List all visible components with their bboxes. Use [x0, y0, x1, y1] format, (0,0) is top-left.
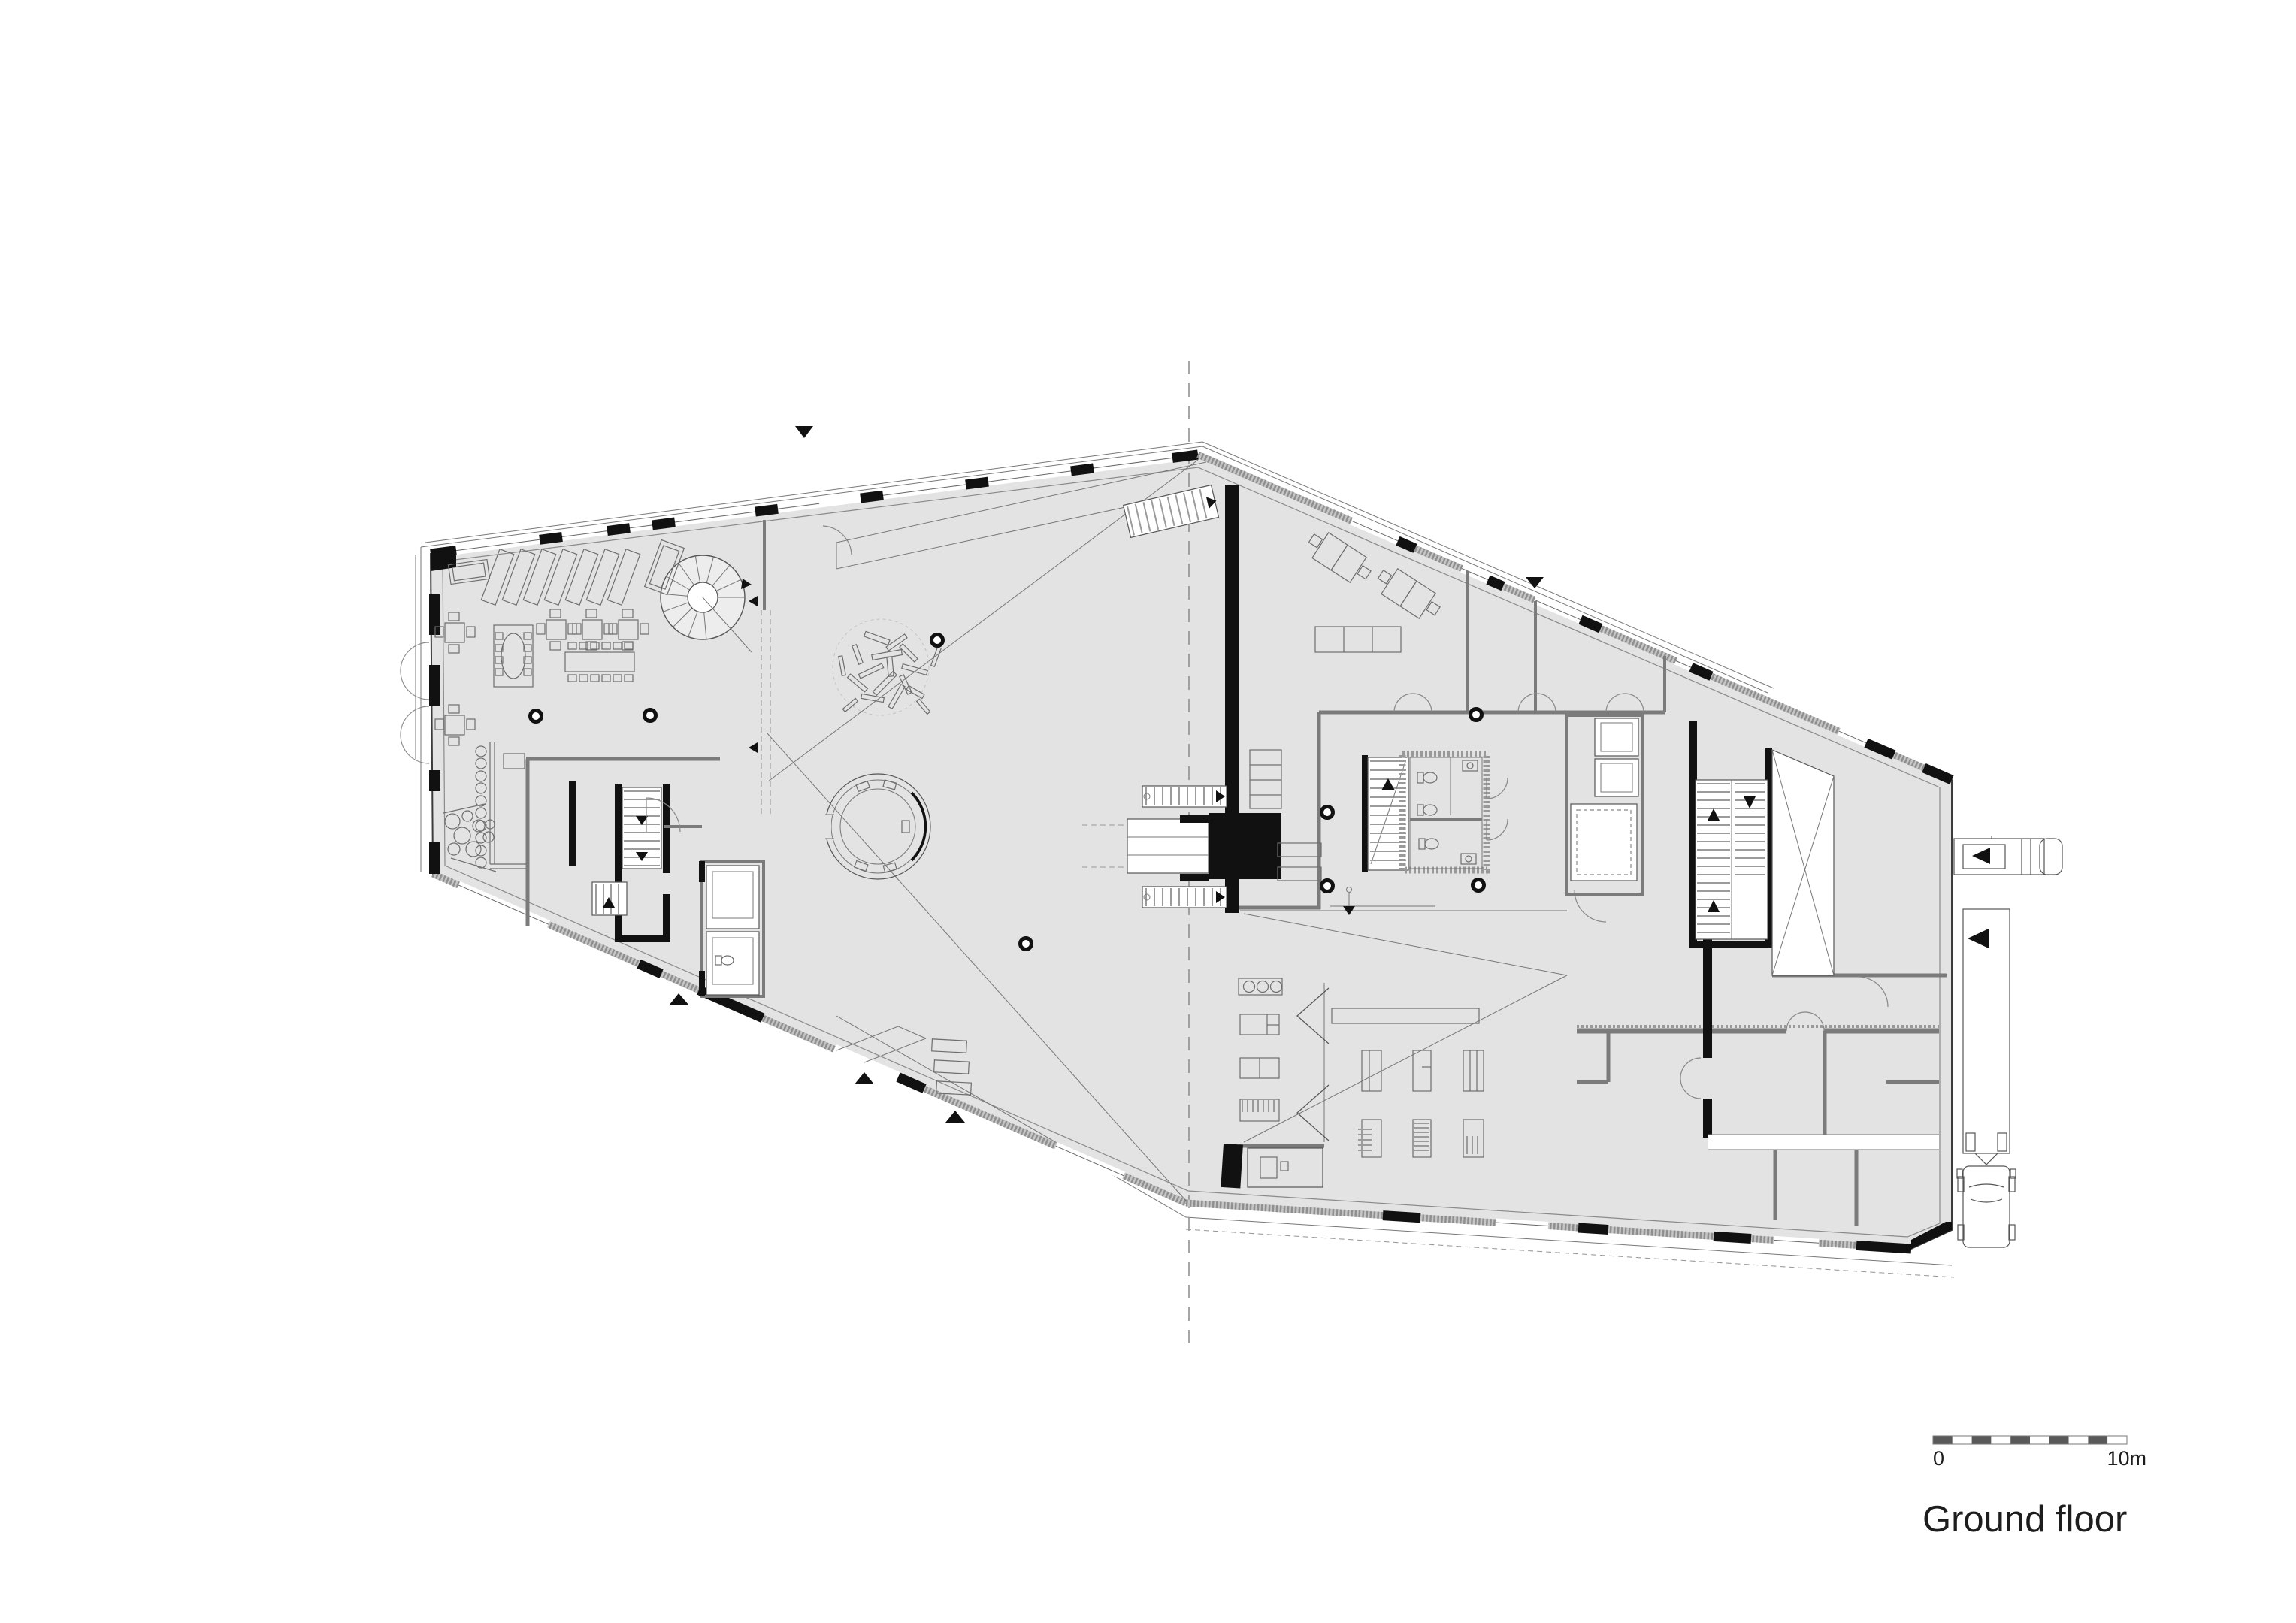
- scale-zero-label: 0: [1933, 1447, 1944, 1470]
- floor-plan-drawing: 0 10m Ground floor: [0, 0, 2296, 1623]
- plan-title: Ground floor: [1922, 1499, 2127, 1540]
- loading-dock: [1954, 839, 2062, 875]
- semi-trailer-truck: [1957, 909, 2016, 1247]
- bay-window-arc: [401, 706, 429, 763]
- bay-window-arc: [401, 642, 429, 700]
- scale-max-label: 10m: [2107, 1447, 2146, 1470]
- freight-elevator: [1571, 804, 1637, 881]
- corridor: [1708, 1135, 1939, 1150]
- scale-bar: 0 10m: [1933, 1436, 2146, 1470]
- page: 0 10m Ground floor: [0, 0, 2296, 1623]
- entrance-passages: [1127, 819, 1209, 873]
- elevator-bank-left: [699, 861, 764, 996]
- cross-braced-shaft: [1772, 750, 1834, 975]
